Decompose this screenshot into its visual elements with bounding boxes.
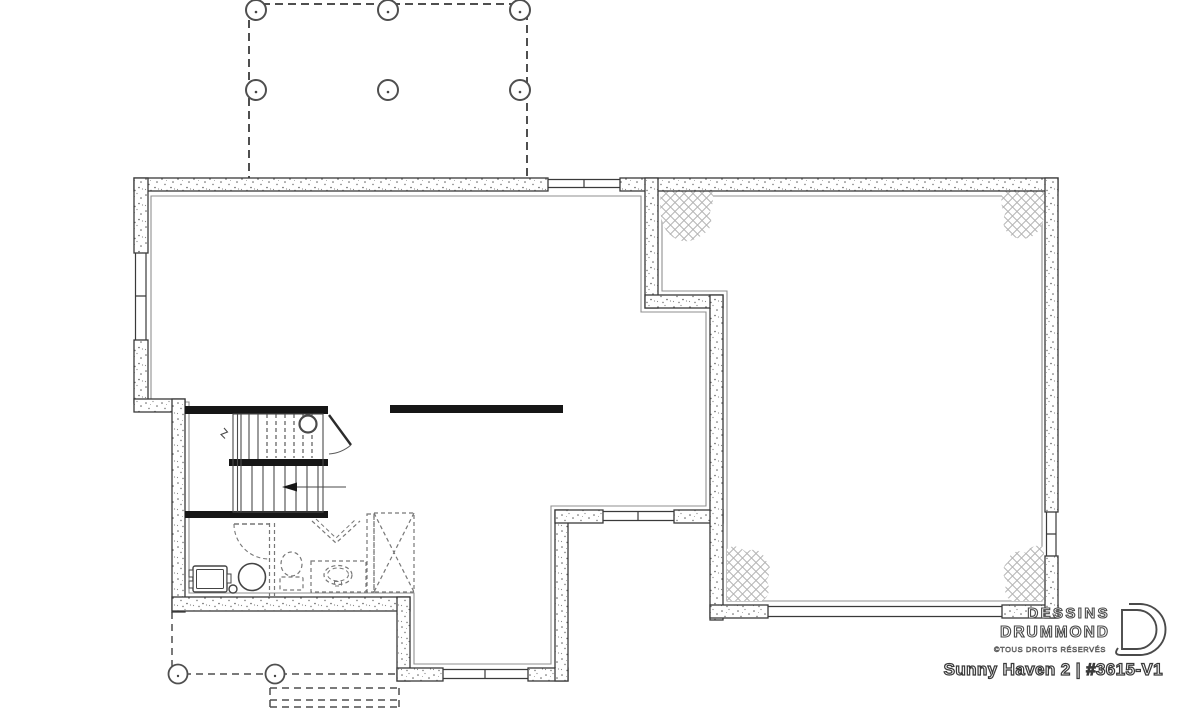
logo-dessins: DESSINS	[1027, 605, 1110, 622]
deck-posts	[246, 0, 530, 100]
hatch-bottom-right	[1003, 546, 1044, 601]
foundation-walls	[134, 178, 1058, 681]
wall-left-upper	[134, 178, 148, 253]
stair-treads-lower	[252, 466, 318, 511]
stair-wall-mid	[229, 459, 328, 466]
stair-treads-upper-left	[249, 414, 258, 459]
landing-post	[300, 416, 317, 433]
logo-drummond: DRUMMOND	[1000, 624, 1110, 642]
floor-drain	[229, 585, 237, 593]
future-door-swing	[234, 524, 269, 559]
wall-right-upper	[1045, 178, 1058, 512]
furnace-tab2	[189, 581, 193, 588]
floor-plan-sheet: DESSINS DRUMMOND ©TOUS DROITS RÉSERVÉS S…	[0, 0, 1200, 711]
plan-title: Sunny Haven 2 | #3615-V1	[944, 660, 1163, 680]
furnace-tab3	[227, 574, 231, 583]
stair-break-mark	[221, 428, 228, 439]
garage-door-opening	[768, 607, 1002, 617]
wall-family-south-a	[555, 510, 603, 523]
steel-beam	[390, 405, 563, 413]
wall-garage-left	[710, 295, 723, 620]
basement-inner-face	[151, 196, 706, 664]
floor-plan-drawing	[0, 0, 1200, 711]
logo-copyright: ©TOUS DROITS RÉSERVÉS	[994, 645, 1106, 654]
wall-left-lower	[172, 399, 185, 612]
wall-notch-right	[555, 510, 568, 681]
future-bathroom	[270, 513, 415, 596]
wall-notch-bottom-a	[397, 668, 443, 681]
wall-divider-upper	[645, 178, 658, 308]
wall-top-right-segment	[620, 178, 1058, 191]
hatch-bottom-left	[727, 546, 770, 601]
future-bifold-doors-outer	[312, 521, 360, 543]
deck-above-outline	[246, 0, 530, 180]
wall-garage-bottom-a	[710, 605, 768, 618]
future-chase	[367, 514, 374, 592]
window-family-south	[603, 512, 674, 521]
porch-steps	[270, 688, 399, 707]
stair-door-swing	[329, 445, 351, 454]
water-heater	[239, 564, 266, 591]
stair-wall-top	[185, 406, 328, 414]
window-top-wall	[548, 180, 620, 188]
future-shower-x	[374, 513, 414, 592]
future-toilet-tank	[280, 577, 303, 590]
stair-door-leaf	[329, 415, 351, 445]
porch-below-outline	[169, 612, 400, 707]
hatch-top-right	[1001, 191, 1045, 239]
future-bifold-doors-inner	[316, 519, 356, 538]
wall-bottom-left	[172, 597, 410, 611]
window-right-wall	[1047, 512, 1057, 556]
window-left-wall	[136, 253, 147, 340]
furnace-tab1	[189, 570, 193, 577]
future-sink-inner	[328, 568, 349, 581]
drummond-d-icon	[1116, 604, 1165, 655]
d-icon-inner	[1122, 610, 1157, 649]
window-notch-bottom	[443, 670, 528, 679]
furnace-inner	[197, 570, 224, 589]
future-toilet-bowl	[281, 552, 302, 576]
future-partition	[270, 523, 275, 596]
hatch-top-left	[660, 191, 713, 241]
mechanical-fixtures	[189, 564, 266, 594]
framed-walls	[185, 405, 563, 518]
porch-dashed-edge	[172, 612, 399, 674]
stair-arrow-head	[282, 483, 297, 492]
wall-left-mid	[134, 340, 148, 403]
wall-top-left-segment	[134, 178, 548, 191]
